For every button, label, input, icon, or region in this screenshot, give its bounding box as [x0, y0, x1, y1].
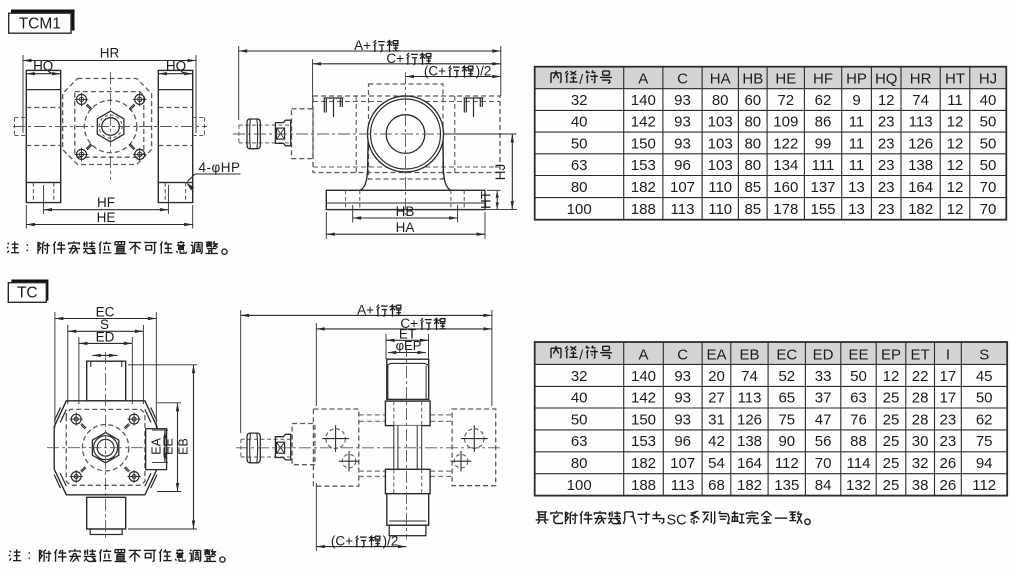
svg-text:90: 90: [778, 433, 795, 450]
svg-text:23: 23: [940, 411, 957, 428]
svg-text:74: 74: [741, 368, 758, 385]
svg-text:HE: HE: [97, 210, 116, 225]
svg-text:32: 32: [912, 455, 929, 472]
svg-text:103: 103: [708, 157, 733, 174]
svg-text:32: 32: [571, 368, 588, 385]
svg-text:93: 93: [674, 390, 691, 407]
svg-text:93: 93: [674, 92, 691, 109]
svg-text:EA: EA: [706, 346, 726, 363]
svg-text:56: 56: [815, 433, 832, 450]
svg-text:122: 122: [773, 135, 798, 152]
svg-text:ED: ED: [96, 329, 115, 344]
svg-text:96: 96: [674, 433, 691, 450]
svg-text:4-φHP: 4-φHP: [199, 160, 241, 175]
svg-text:72: 72: [777, 92, 794, 109]
svg-text:138: 138: [737, 433, 762, 450]
svg-text:54: 54: [708, 455, 725, 472]
svg-text:38: 38: [912, 477, 929, 494]
svg-text:13: 13: [848, 201, 865, 218]
svg-text:142: 142: [631, 114, 656, 131]
svg-text:11: 11: [849, 114, 865, 131]
svg-text:28: 28: [912, 390, 929, 407]
svg-text:12: 12: [947, 201, 964, 218]
svg-text:20: 20: [708, 368, 725, 385]
svg-text:155: 155: [810, 201, 835, 218]
svg-text:HR: HR: [100, 46, 120, 61]
svg-text:126: 126: [737, 411, 762, 428]
svg-text:153: 153: [631, 157, 656, 174]
svg-text:HQ: HQ: [875, 71, 898, 88]
svg-text:30: 30: [912, 433, 929, 450]
svg-text:11: 11: [947, 92, 963, 109]
svg-text:C: C: [677, 346, 688, 363]
svg-text:100: 100: [567, 477, 592, 494]
svg-text:47: 47: [815, 411, 832, 428]
svg-text:23: 23: [940, 433, 957, 450]
svg-text:/: /: [579, 71, 583, 87]
svg-text:A+: A+: [354, 38, 371, 53]
svg-text:50: 50: [980, 135, 997, 152]
svg-text:EE: EE: [848, 346, 868, 363]
svg-text:60: 60: [744, 92, 761, 109]
svg-text:25: 25: [883, 390, 900, 407]
svg-text:40: 40: [571, 114, 588, 131]
svg-text:23: 23: [878, 114, 895, 131]
svg-text:93: 93: [674, 135, 691, 152]
svg-text:164: 164: [908, 179, 933, 196]
svg-text:68: 68: [708, 477, 725, 494]
svg-text:84: 84: [815, 477, 832, 494]
svg-text:150: 150: [631, 135, 656, 152]
svg-text:103: 103: [708, 135, 733, 152]
svg-text:TC: TC: [17, 285, 38, 302]
svg-text:HT: HT: [945, 71, 965, 88]
svg-text:32: 32: [571, 92, 588, 109]
svg-text:80: 80: [571, 455, 588, 472]
svg-text:25: 25: [883, 455, 900, 472]
svg-text:45: 45: [976, 368, 993, 385]
svg-text:138: 138: [908, 157, 933, 174]
svg-text:12: 12: [947, 179, 964, 196]
svg-text:23: 23: [878, 135, 895, 152]
svg-text:110: 110: [708, 179, 732, 196]
svg-text:(C+: (C+: [331, 533, 353, 548]
svg-text:93: 93: [674, 368, 691, 385]
svg-text:113: 113: [909, 114, 933, 131]
svg-text:11: 11: [849, 135, 865, 152]
svg-text:76: 76: [850, 411, 867, 428]
svg-text:65: 65: [778, 390, 795, 407]
svg-text:132: 132: [846, 477, 871, 494]
svg-text:113: 113: [738, 390, 762, 407]
svg-text:A: A: [638, 346, 648, 363]
svg-text:HB: HB: [396, 204, 415, 219]
svg-text:182: 182: [631, 455, 656, 472]
svg-text:99: 99: [815, 135, 832, 152]
svg-text:HA: HA: [396, 220, 415, 235]
svg-text:12: 12: [947, 114, 964, 131]
svg-text:63: 63: [571, 157, 588, 174]
svg-text:25: 25: [883, 433, 900, 450]
svg-text:17: 17: [940, 390, 957, 407]
svg-text:I: I: [946, 346, 950, 363]
svg-text:25: 25: [883, 477, 900, 494]
svg-text:80: 80: [571, 179, 588, 196]
svg-text:EP: EP: [881, 346, 901, 363]
svg-text:188: 188: [631, 477, 656, 494]
svg-text:107: 107: [670, 179, 695, 196]
svg-text:140: 140: [631, 92, 656, 109]
svg-text:26: 26: [940, 477, 957, 494]
svg-text:TCM1: TCM1: [19, 16, 61, 33]
svg-text:40: 40: [571, 390, 588, 407]
svg-text:182: 182: [631, 179, 656, 196]
svg-text:S: S: [979, 346, 989, 363]
svg-text:107: 107: [670, 455, 695, 472]
svg-text:62: 62: [976, 411, 993, 428]
svg-text:63: 63: [571, 433, 588, 450]
svg-text:SC: SC: [667, 512, 687, 528]
svg-text:HR: HR: [910, 71, 932, 88]
svg-text:93: 93: [674, 114, 691, 131]
svg-text:HP: HP: [846, 71, 867, 88]
svg-text:40: 40: [980, 92, 997, 109]
svg-text:11: 11: [849, 157, 865, 174]
svg-text:137: 137: [810, 179, 835, 196]
svg-text:88: 88: [850, 433, 867, 450]
svg-text:HJ: HJ: [493, 164, 508, 181]
svg-text:HA: HA: [710, 71, 731, 88]
svg-text:HJ: HJ: [979, 71, 997, 88]
svg-text:50: 50: [980, 114, 997, 131]
svg-text:50: 50: [850, 368, 867, 385]
svg-text:142: 142: [631, 390, 656, 407]
svg-text:EC: EC: [776, 346, 797, 363]
svg-text:37: 37: [815, 390, 832, 407]
svg-text:HF: HF: [813, 71, 833, 88]
svg-text:EB: EB: [739, 346, 759, 363]
svg-text:103: 103: [708, 114, 733, 131]
svg-text:)/2: )/2: [476, 63, 492, 78]
svg-text:80: 80: [744, 135, 761, 152]
svg-text:(C+: (C+: [424, 63, 446, 78]
svg-text:12: 12: [883, 368, 900, 385]
svg-text:112: 112: [775, 455, 799, 472]
svg-text:111: 111: [812, 157, 835, 174]
svg-text:164: 164: [737, 455, 762, 472]
svg-text:23: 23: [878, 179, 895, 196]
svg-text:HB: HB: [742, 71, 763, 88]
svg-text:126: 126: [908, 135, 933, 152]
svg-text:93: 93: [674, 411, 691, 428]
svg-text:HT: HT: [479, 191, 494, 209]
svg-text:23: 23: [878, 157, 895, 174]
svg-text:109: 109: [773, 114, 798, 131]
svg-text:17: 17: [940, 368, 957, 385]
svg-text:50: 50: [571, 135, 588, 152]
svg-text:ED: ED: [813, 346, 834, 363]
svg-text:HE: HE: [775, 71, 796, 88]
svg-text:178: 178: [773, 201, 798, 218]
svg-text:75: 75: [778, 411, 795, 428]
svg-text:80: 80: [744, 157, 761, 174]
svg-text:25: 25: [883, 411, 900, 428]
svg-text:27: 27: [708, 390, 725, 407]
svg-text:/: /: [579, 346, 583, 362]
svg-text:85: 85: [744, 201, 761, 218]
svg-text:70: 70: [980, 179, 997, 196]
svg-text:12: 12: [947, 157, 964, 174]
svg-text:160: 160: [773, 179, 798, 196]
svg-text:153: 153: [631, 433, 656, 450]
svg-text:74: 74: [912, 92, 929, 109]
svg-text:A+: A+: [357, 303, 374, 318]
svg-text:12: 12: [878, 92, 895, 109]
svg-text:134: 134: [773, 157, 798, 174]
svg-text:150: 150: [631, 411, 656, 428]
svg-text:HF: HF: [97, 195, 115, 210]
svg-text:)/2: )/2: [383, 533, 399, 548]
svg-text:EB: EB: [177, 438, 191, 455]
svg-text:70: 70: [815, 455, 832, 472]
svg-text:114: 114: [847, 455, 871, 472]
svg-text:70: 70: [980, 201, 997, 218]
svg-text:50: 50: [980, 157, 997, 174]
svg-text:182: 182: [908, 201, 933, 218]
svg-text:13: 13: [848, 179, 865, 196]
svg-text:22: 22: [912, 368, 929, 385]
svg-text:28: 28: [912, 411, 929, 428]
svg-text:9: 9: [852, 92, 860, 109]
svg-text:110: 110: [708, 201, 732, 218]
svg-text:113: 113: [671, 477, 695, 494]
svg-text:86: 86: [815, 114, 832, 131]
svg-text:ET: ET: [911, 346, 930, 363]
svg-text:C: C: [677, 71, 688, 88]
svg-text:188: 188: [631, 201, 656, 218]
svg-text:52: 52: [778, 368, 795, 385]
svg-text:182: 182: [737, 477, 762, 494]
svg-text:HQ: HQ: [33, 59, 53, 74]
svg-text:75: 75: [976, 433, 993, 450]
svg-text:80: 80: [744, 114, 761, 131]
svg-text:12: 12: [947, 135, 964, 152]
svg-text:85: 85: [744, 179, 761, 196]
svg-text:EE: EE: [161, 438, 175, 455]
svg-text:140: 140: [631, 368, 656, 385]
svg-text:94: 94: [976, 455, 993, 472]
svg-text:31: 31: [708, 411, 725, 428]
svg-text:50: 50: [571, 411, 588, 428]
svg-text:50: 50: [976, 390, 993, 407]
svg-text:100: 100: [567, 201, 592, 218]
svg-text:63: 63: [850, 390, 867, 407]
svg-text:A: A: [638, 71, 648, 88]
svg-text:HQ: HQ: [166, 59, 186, 74]
svg-text:C+: C+: [386, 51, 404, 66]
svg-text:112: 112: [972, 477, 996, 494]
svg-text:135: 135: [774, 477, 799, 494]
svg-text:62: 62: [815, 92, 832, 109]
svg-text:φEP: φEP: [396, 338, 422, 353]
svg-text:80: 80: [712, 92, 729, 109]
svg-text:42: 42: [708, 433, 725, 450]
svg-text:33: 33: [815, 368, 832, 385]
svg-text:26: 26: [940, 455, 957, 472]
svg-text:113: 113: [671, 201, 695, 218]
svg-text:23: 23: [878, 201, 895, 218]
svg-text:96: 96: [674, 157, 691, 174]
